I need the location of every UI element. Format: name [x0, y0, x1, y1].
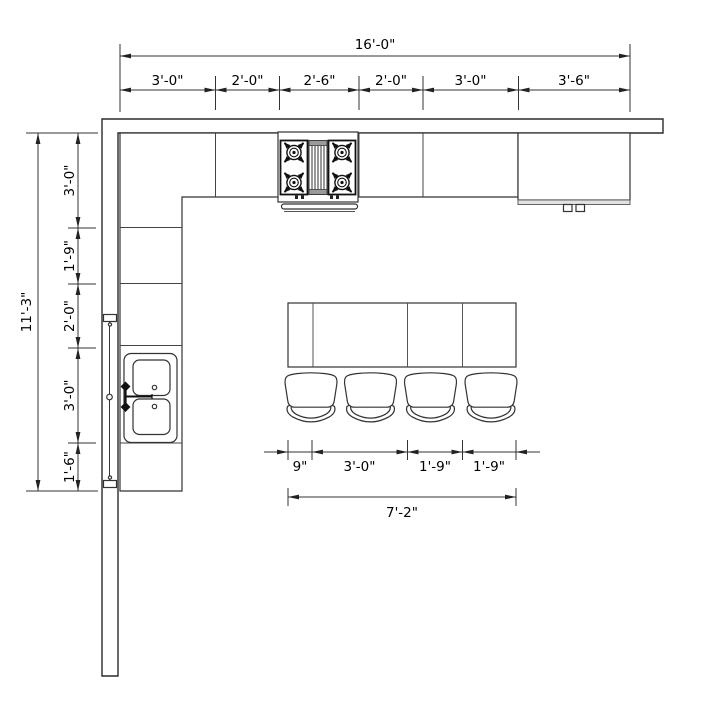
dim-arrow: [120, 54, 131, 59]
dim-label-top-seg-5: 3'-6": [558, 73, 590, 89]
dimension-island: 9" 3'-0" 1'-9" 1'-9" 7'-2": [264, 440, 540, 521]
dim-label-left-seg-0: 3'-0": [62, 165, 78, 197]
sink-basin-top: [133, 360, 170, 396]
dim-arrow: [408, 450, 419, 455]
dim-arrow: [36, 480, 41, 491]
burner-icon: [284, 173, 304, 193]
dim-arrow: [312, 450, 323, 455]
burner-icon: [284, 143, 304, 163]
dim-arrow: [463, 450, 474, 455]
dim-arrow: [619, 88, 630, 93]
drain-top: [152, 385, 156, 389]
dim-arrow: [216, 88, 227, 93]
window-pin-top: [108, 323, 111, 326]
bar-stools: [285, 373, 517, 422]
floor-plan-canvas: 16'-0" 3'-0" 2'-0" 2'-6" 2'-0" 3'-0" 3'-…: [0, 0, 712, 710]
dim-label-island-seg-3: 1'-9": [473, 459, 505, 475]
dim-label-left-seg-3: 3'-0": [62, 380, 78, 412]
refrigerator-handle-right: [576, 205, 585, 212]
dim-arrow: [423, 88, 434, 93]
dimension-left: 11'-3" 3'-0" 1'-9" 2'-0" 3'-0" 1'-6": [19, 133, 98, 491]
griddle-cap-bottom: [309, 190, 327, 195]
dim-label-top-seg-3: 2'-0": [375, 73, 407, 89]
bar-stool-icon: [405, 373, 457, 422]
dim-label-left-seg-2: 2'-0": [62, 300, 78, 332]
dim-arrow: [76, 228, 81, 239]
griddle-cap-top: [309, 141, 327, 146]
dim-arrow: [277, 450, 288, 455]
dim-arrow: [36, 133, 41, 144]
dim-arrow: [519, 88, 530, 93]
window-pin-bottom: [108, 476, 111, 479]
dim-label-top-seg-0: 3'-0": [152, 73, 184, 89]
window-jamb-top: [104, 315, 117, 322]
dim-arrow: [76, 348, 81, 359]
dim-arrow: [76, 284, 81, 295]
dim-arrow: [76, 133, 81, 144]
refrigerator-front-band: [518, 200, 630, 205]
dim-label-top-seg-4: 3'-0": [455, 73, 487, 89]
dim-arrow: [76, 217, 81, 228]
dim-label-left-seg-4: 1'-6": [62, 451, 78, 483]
dim-arrow: [205, 88, 216, 93]
dim-label-top-total: 16'-0": [355, 37, 396, 53]
dim-arrow: [505, 495, 516, 500]
dim-arrow: [280, 88, 291, 93]
dim-label-island-seg-1: 3'-0": [344, 459, 376, 475]
bar-stool-icon: [465, 373, 517, 422]
dim-label-left-total: 11'-3": [19, 292, 35, 333]
dim-arrow: [359, 88, 370, 93]
kitchen-floor-plan: 16'-0" 3'-0" 2'-0" 2'-6" 2'-0" 3'-0" 3'-…: [0, 0, 712, 710]
island-counter: [288, 303, 516, 367]
dim-arrow: [348, 88, 359, 93]
drain-bottom: [152, 404, 156, 408]
window-latch: [107, 394, 113, 400]
dim-arrow: [397, 450, 408, 455]
dim-label-island-seg-0: 9": [293, 459, 308, 475]
dimension-top: 16'-0" 3'-0" 2'-0" 2'-6" 2'-0" 3'-0" 3'-…: [120, 37, 630, 112]
dim-arrow: [76, 432, 81, 443]
burner-icon: [332, 173, 352, 193]
sink-basin-bottom: [133, 399, 170, 435]
refrigerator-handle-left: [564, 205, 573, 212]
dim-arrow: [76, 273, 81, 284]
kitchen-island: [288, 303, 516, 367]
window-jamb-bottom: [104, 481, 117, 488]
bar-stool-icon: [345, 373, 397, 422]
dim-arrow: [76, 337, 81, 348]
dim-arrow: [412, 88, 423, 93]
dim-arrow: [508, 88, 519, 93]
cooktop-handle: [282, 204, 358, 209]
gas-cooktop-icon: [278, 132, 358, 212]
dim-arrow: [269, 88, 280, 93]
double-bowl-sink-icon: [121, 354, 177, 443]
dim-label-island-total: 7'-2": [386, 505, 418, 521]
dim-label-island-seg-2: 1'-9": [419, 459, 451, 475]
dim-arrow: [516, 450, 527, 455]
dim-label-top-seg-1: 2'-0": [232, 73, 264, 89]
dim-label-left-seg-1: 1'-9": [62, 240, 78, 272]
dim-arrow: [288, 495, 299, 500]
refrigerator-icon: [518, 133, 630, 212]
burner-icon: [332, 143, 352, 163]
refrigerator-body: [518, 133, 630, 200]
dim-arrow: [452, 450, 463, 455]
bar-stool-icon: [285, 373, 337, 422]
dim-arrow: [120, 88, 131, 93]
dim-arrow: [619, 54, 630, 59]
dim-label-top-seg-2: 2'-6": [304, 73, 336, 89]
